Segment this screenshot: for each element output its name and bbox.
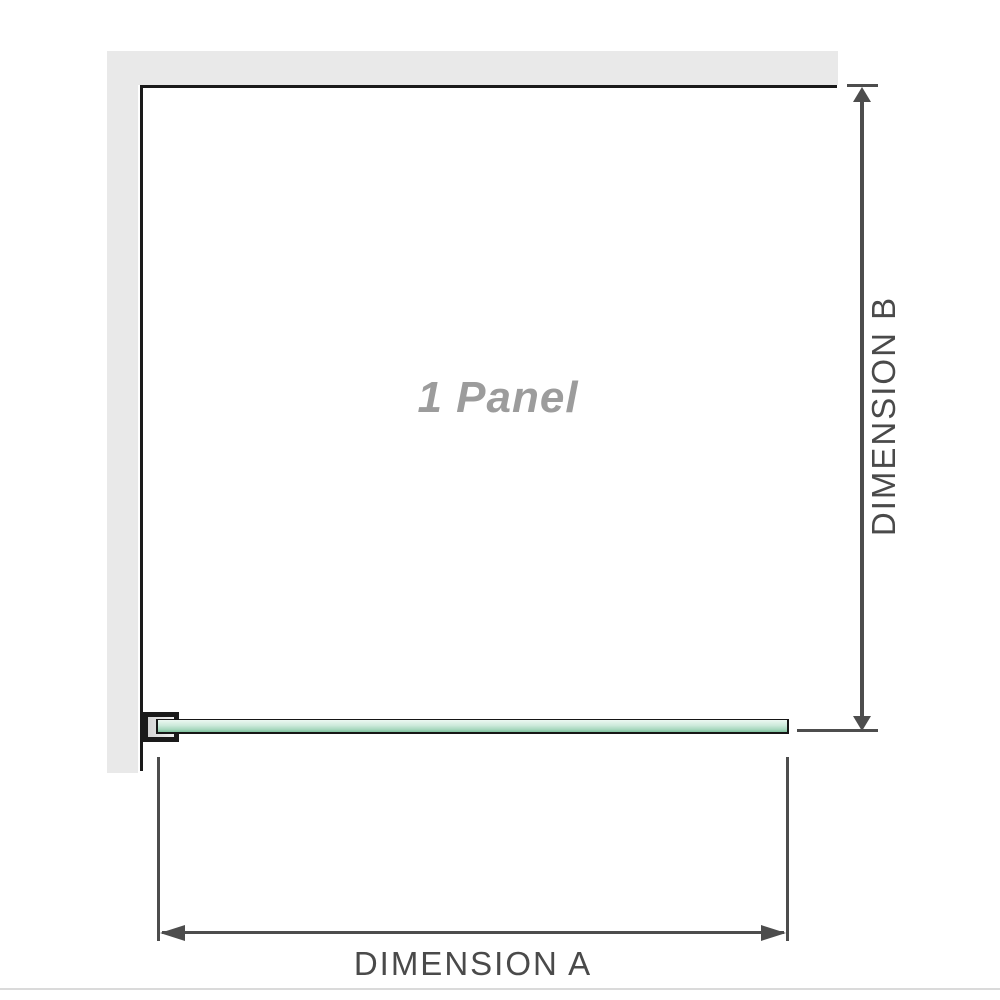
- panel-count-label: 1 Panel: [348, 372, 648, 424]
- dimension-a-arrowhead-left-icon: [160, 925, 185, 941]
- dimension-a-extension-left: [157, 757, 160, 941]
- wall-top: [107, 51, 838, 85]
- dimension-b-arrowhead-up-icon: [853, 87, 871, 102]
- dimension-a-label: DIMENSION A: [273, 946, 673, 982]
- dimension-a-arrowhead-right-icon: [761, 925, 786, 941]
- enclosure-top-line: [140, 85, 837, 88]
- wall-left: [107, 51, 138, 773]
- dimension-a-arrow-line: [162, 931, 784, 934]
- dimension-b-label: DIMENSION B: [864, 266, 904, 566]
- panel-dimension-diagram: 1 Panel DIMENSION B DIMENSION A: [0, 0, 1000, 1000]
- dimension-a-extension-right: [786, 757, 789, 941]
- dimension-b-arrowhead-down-icon: [853, 716, 871, 731]
- glass-panel-bar: [156, 719, 789, 734]
- enclosure-left-line: [140, 85, 143, 771]
- bottom-divider: [0, 988, 1000, 990]
